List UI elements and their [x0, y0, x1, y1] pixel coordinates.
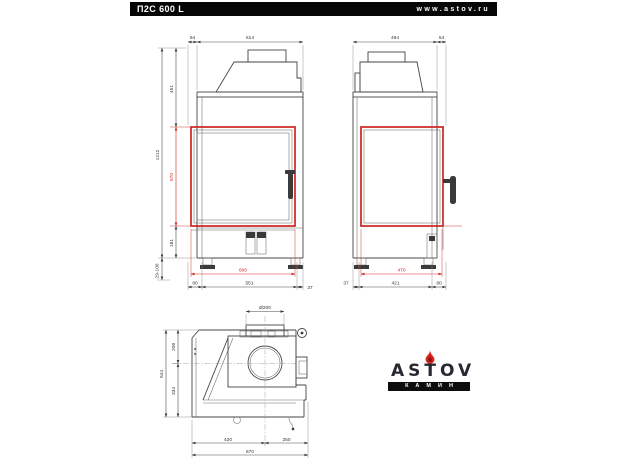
side-feet: [354, 258, 436, 269]
dim-plan-flue-diameter: Ø200: [259, 305, 271, 311]
astov-logo: ASTOV КАМИН: [388, 350, 470, 391]
dim-plan-width-left: 420: [224, 437, 232, 443]
dim-side-top-offset: 54: [439, 35, 445, 41]
plan-corner-glass: [203, 338, 228, 400]
plan-outline: [192, 330, 306, 417]
dim-side-bottom-right: 80: [436, 281, 442, 287]
brand-subtitle: КАМИН: [388, 382, 470, 391]
dim-front-bottom-left: 80: [192, 281, 198, 287]
dim-plan-depth-front: 334: [171, 387, 177, 395]
dim-plan-depth-total: 544: [159, 370, 165, 378]
dim-side-top-depth: 484: [391, 35, 399, 41]
dim-side-bottom-center: 421: [391, 281, 399, 287]
dim-plan-width-total: 670: [246, 449, 254, 455]
dim-front-bottom-right: 37: [307, 285, 313, 291]
flame-icon: [388, 350, 470, 363]
dim-front-glass-width: 600: [239, 268, 247, 274]
front-flue-collar: [248, 50, 286, 62]
plan-latch: [296, 357, 307, 378]
page: П2С 600 L www.astov.ru: [0, 0, 624, 460]
brand-text: ASTOV: [391, 363, 470, 380]
dim-front-height-lower: 181: [169, 239, 175, 247]
side-body: [353, 97, 437, 258]
dim-front-top-width: 614: [246, 35, 254, 41]
side-glass-frame: [361, 127, 443, 226]
front-damper-rods: [246, 232, 266, 254]
dim-front-legs-range: 29-100: [155, 263, 161, 278]
front-door-handle: [285, 170, 295, 199]
dim-plan-width-right: 250: [282, 437, 290, 443]
plan-hinge-bracket: [298, 329, 307, 338]
dim-front-height-total: 1212: [155, 149, 161, 160]
plan-view: Ø200 544 208 334 420 250 670: [159, 305, 308, 458]
plan-pivot: [234, 417, 241, 424]
front-feet: [200, 258, 303, 269]
dim-side-bottom-left: 37: [343, 281, 349, 287]
dim-front-height-upper: 451: [169, 85, 175, 93]
front-view: 54 614 1212 451 570 181 29-100 600 80 5: [155, 35, 313, 291]
technical-drawing: 54 614 1212 451 570 181 29-100 600 80 5: [0, 0, 624, 460]
plan-cable: [289, 418, 293, 428]
side-view: 484 54 470 37 421 80: [343, 35, 462, 290]
dim-side-glass-depth: 470: [397, 268, 405, 274]
front-hood: [216, 62, 301, 92]
front-glass-frame: [191, 127, 295, 226]
dim-front-bottom-center: 551: [245, 281, 253, 287]
side-hood: [360, 62, 423, 92]
dim-front-glass-height: 570: [169, 173, 175, 181]
side-door-handle: [443, 176, 456, 204]
dim-front-top-offset: 54: [190, 35, 196, 41]
dim-plan-depth-rear: 208: [171, 343, 177, 351]
side-flue-collar: [368, 52, 405, 62]
